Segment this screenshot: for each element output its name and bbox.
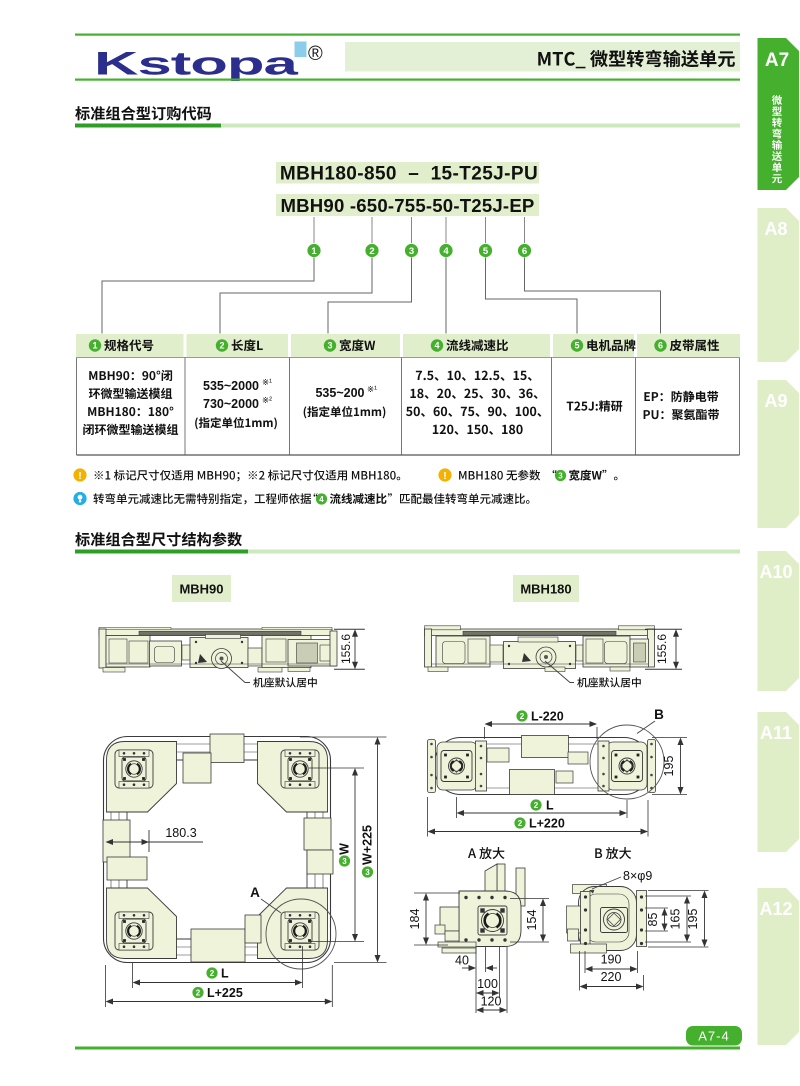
svg-text:L-220: L-220: [531, 710, 564, 724]
svg-text:L+225: L+225: [207, 986, 243, 1000]
svg-text:2: 2: [518, 819, 523, 828]
svg-text:1: 1: [311, 246, 317, 257]
svg-text:A7-4: A7-4: [698, 1029, 729, 1044]
svg-text:535~200: 535~200: [315, 386, 364, 400]
svg-text:!: !: [443, 470, 447, 482]
svg-text:MBH180-850 – 15-T25J-PU: MBH180-850 – 15-T25J-PU: [280, 164, 538, 185]
svg-text:155.6: 155.6: [339, 634, 353, 664]
svg-text:195: 195: [662, 756, 676, 777]
svg-text:5: 5: [483, 246, 489, 257]
svg-text:MBH90 -650-755-50-T25J-EP: MBH90 -650-755-50-T25J-EP: [280, 195, 534, 216]
svg-text:2: 2: [369, 246, 374, 257]
svg-text:※¹: ※¹: [262, 377, 272, 387]
svg-text:3: 3: [558, 471, 563, 480]
svg-text:A10: A10: [759, 562, 792, 582]
svg-text:730~2000: 730~2000: [203, 397, 259, 411]
svg-text:!: !: [78, 470, 82, 482]
svg-text:2: 2: [534, 801, 539, 810]
svg-text:4: 4: [443, 246, 449, 257]
svg-text:184: 184: [408, 909, 422, 930]
svg-text:155.6: 155.6: [655, 634, 669, 664]
svg-text:2: 2: [219, 341, 224, 351]
svg-text:535~2000: 535~2000: [203, 379, 259, 393]
svg-text:L+220: L+220: [529, 817, 565, 831]
svg-text:85: 85: [646, 913, 660, 927]
svg-text:B: B: [654, 707, 664, 722]
svg-text:L: L: [221, 967, 229, 981]
svg-text:2: 2: [520, 712, 525, 721]
svg-text:40: 40: [455, 954, 469, 968]
svg-text:A12: A12: [759, 899, 792, 919]
svg-text:190: 190: [601, 953, 622, 967]
svg-text:120: 120: [481, 995, 502, 1009]
svg-text:8×φ9: 8×φ9: [623, 869, 652, 883]
svg-text:W+225: W+225: [361, 825, 375, 865]
svg-text:3: 3: [409, 246, 414, 257]
svg-text:4: 4: [319, 495, 324, 504]
svg-text:3: 3: [365, 868, 370, 877]
svg-text:5: 5: [574, 341, 579, 351]
svg-text:4: 4: [434, 341, 439, 351]
svg-text:3: 3: [342, 857, 347, 866]
svg-text:Kstopa: Kstopa: [94, 46, 299, 82]
svg-text:1: 1: [92, 341, 97, 351]
svg-text:A9: A9: [764, 391, 787, 411]
svg-text:®: ®: [308, 43, 323, 65]
svg-text:220: 220: [601, 970, 622, 984]
svg-text:2: 2: [210, 969, 215, 978]
svg-text:6: 6: [658, 341, 663, 351]
svg-text:2: 2: [196, 988, 201, 997]
svg-text:195: 195: [686, 909, 700, 930]
svg-text:A7: A7: [765, 50, 789, 71]
svg-text:※²: ※²: [262, 395, 272, 405]
svg-text:MBH90: MBH90: [179, 582, 223, 597]
svg-text:6: 6: [522, 246, 527, 257]
svg-text:180.3: 180.3: [165, 826, 196, 840]
svg-text:3: 3: [327, 341, 332, 351]
svg-text:100: 100: [477, 977, 498, 991]
svg-text:W: W: [338, 843, 352, 855]
svg-text:154: 154: [525, 910, 539, 931]
svg-text:A11: A11: [760, 723, 792, 743]
svg-text:A8: A8: [764, 219, 787, 239]
svg-text:※¹: ※¹: [367, 384, 377, 394]
svg-text:MBH180: MBH180: [520, 582, 571, 597]
svg-text:L: L: [546, 799, 554, 813]
svg-text:A: A: [250, 885, 260, 900]
svg-text:165: 165: [669, 909, 683, 930]
